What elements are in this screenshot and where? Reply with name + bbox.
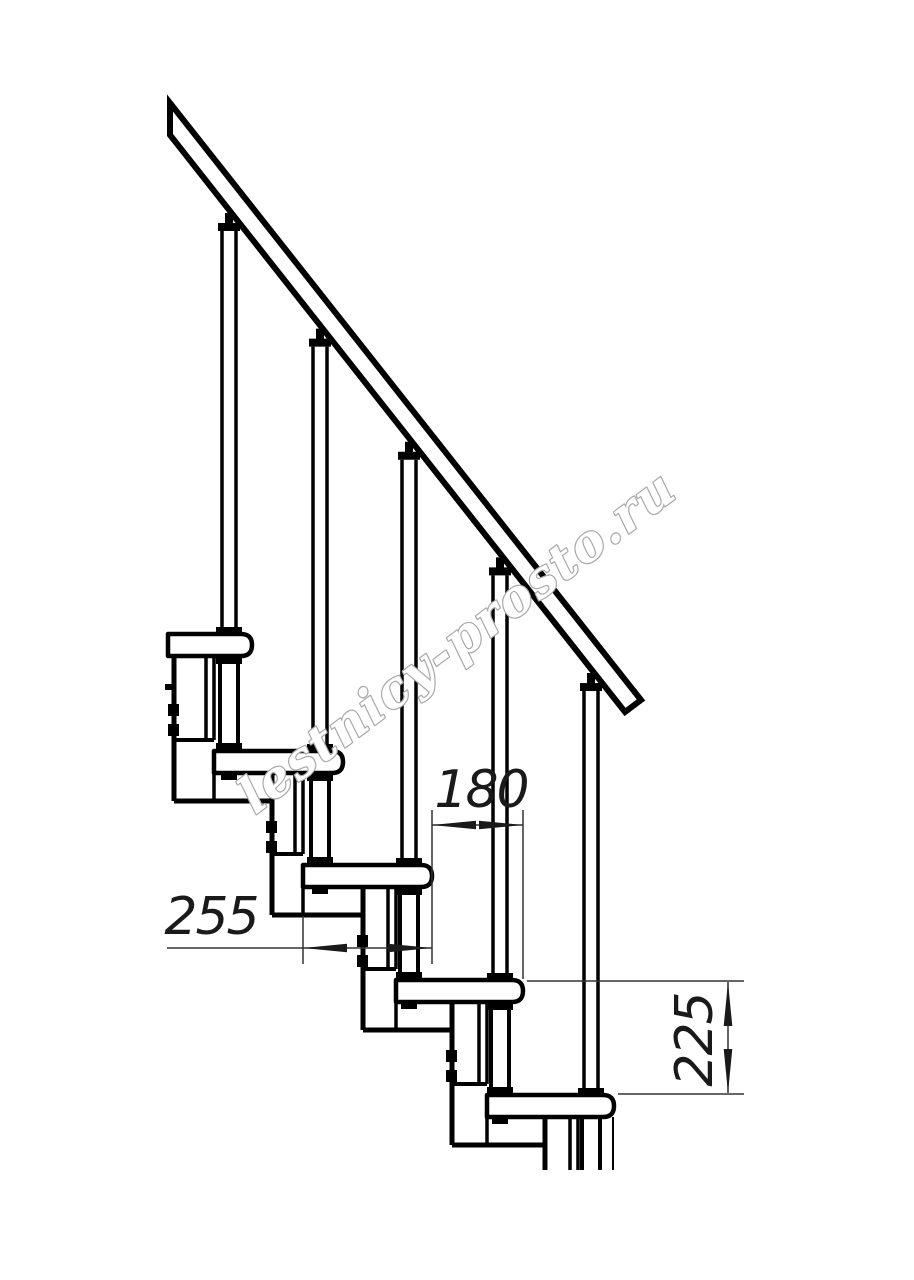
tread-3: [303, 865, 432, 887]
baluster-top-collar: [398, 452, 420, 460]
tread-5: [487, 1095, 614, 1117]
baluster-top-collar: [309, 339, 331, 347]
strut-nut: [492, 1117, 508, 1124]
module-bolt: [168, 724, 179, 736]
baluster-foot-collar: [396, 858, 422, 865]
baluster-top-collar: [580, 683, 602, 691]
baluster-top-collar: [218, 223, 240, 231]
strut-nut: [401, 1002, 417, 1009]
module-bolt: [168, 704, 179, 716]
module-bolt: [446, 1070, 457, 1082]
dimension-label-tread-depth: 255: [164, 887, 257, 947]
strut-bottom-collar: [216, 743, 242, 751]
module-bolt: [266, 841, 277, 853]
strut-bottom-collar: [396, 972, 422, 980]
module-bolt: [446, 1050, 457, 1062]
baluster-foot-collar: [487, 973, 513, 980]
baluster-rail-connector: [225, 213, 233, 224]
dimension-label-rise-height: 225: [665, 993, 725, 1086]
baluster-rail-connector: [316, 329, 324, 340]
baluster-rail-connector: [496, 557, 504, 568]
module-flange-stub: [165, 684, 174, 690]
strut-top-collar: [487, 1002, 513, 1010]
baluster-foot-collar: [578, 1088, 604, 1095]
strut-bottom-collar: [487, 1087, 513, 1095]
module-bolt: [266, 821, 277, 833]
dimension-label-step-offset: 180: [434, 760, 527, 820]
strut-top-collar: [396, 887, 422, 895]
baluster-rail-connector: [405, 442, 413, 453]
staircase-technical-drawing: lestnicy-prosto.ru 255 180 225: [0, 0, 914, 1280]
strut-top-collar: [216, 656, 242, 664]
strut-bottom-collar: [307, 857, 333, 865]
strut-nut: [312, 887, 328, 894]
tread-1: [168, 634, 252, 656]
baluster-foot-collar: [216, 627, 242, 634]
baluster-rail-connector: [587, 673, 595, 684]
module-bolt: [357, 935, 368, 947]
module-bolt: [357, 955, 368, 967]
tread-4: [396, 980, 523, 1002]
